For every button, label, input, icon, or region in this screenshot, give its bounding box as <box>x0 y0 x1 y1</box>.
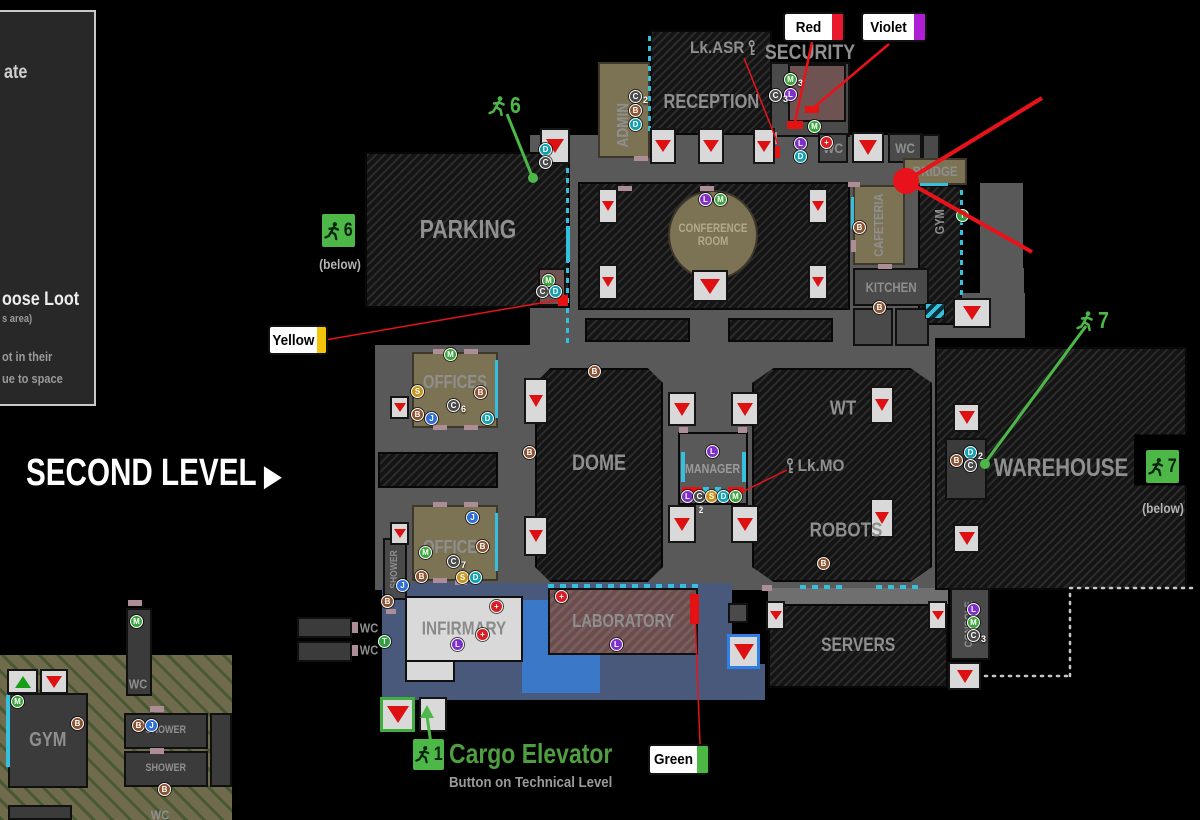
stairs-down-icon <box>875 399 889 411</box>
loot-marker-D: D <box>469 571 482 584</box>
loot-marker-L: L <box>967 603 980 616</box>
loot-marker-M: M <box>967 616 980 629</box>
door-marker <box>128 600 142 606</box>
keycard-label-red: Red <box>783 12 845 42</box>
loot-marker-L: L <box>706 445 719 458</box>
room-kitchen: KITCHEN <box>853 268 929 306</box>
stair-marker <box>668 505 696 543</box>
key-name: Lk.ASR <box>690 38 744 58</box>
keycard-name: Green <box>652 746 694 773</box>
door-marker <box>433 502 447 507</box>
keycard-label-violet: Violet <box>861 12 927 42</box>
room-label: MANAGER <box>685 462 740 476</box>
room-label: PARKING <box>419 216 516 243</box>
floor-area <box>768 588 948 604</box>
room-room <box>8 805 72 820</box>
exit-badge-7: 7 <box>1146 450 1179 483</box>
legend-text-fragment: s area) <box>2 313 32 325</box>
loot-marker-J: J <box>145 719 158 732</box>
keycard-door-marker <box>787 121 803 129</box>
stair-marker <box>731 392 759 426</box>
room-room <box>210 713 232 787</box>
keycard-name: Yellow <box>272 327 314 353</box>
stairs-down-icon <box>602 201 614 211</box>
door-marker <box>352 645 358 656</box>
stairs-down-icon <box>963 306 981 320</box>
door-marker <box>679 427 688 433</box>
room-label: WAREHOUSE <box>994 455 1128 481</box>
room-dome: DOME <box>535 368 663 582</box>
loot-marker-L: L <box>794 137 807 150</box>
stair-marker <box>953 403 980 432</box>
door-marker <box>464 425 478 430</box>
room-bridge: BRIDGE <box>903 158 967 185</box>
level-title-text: SECOND LEVEL <box>26 452 256 494</box>
room-shower-room: SHOWER <box>124 751 208 787</box>
loot-marker-B: B <box>523 446 536 459</box>
loot-marker-med: + <box>476 628 489 641</box>
loot-count: 3 <box>981 634 986 644</box>
loot-marker-B: B <box>853 221 866 234</box>
door-marker <box>634 156 648 161</box>
loot-marker-T: T <box>956 209 969 222</box>
cyan-wall-marker <box>742 452 746 482</box>
stairs-down-icon <box>734 644 754 660</box>
exit-runner-icon <box>1147 457 1167 477</box>
room-label: BRIDGE <box>913 164 958 179</box>
exit-runner-icon <box>1075 310 1097 332</box>
loot-marker-C: C <box>447 399 460 412</box>
stair-marker <box>753 128 775 164</box>
loot-marker-B: B <box>629 104 642 117</box>
door-marker <box>433 425 447 430</box>
loot-marker-L: L <box>451 638 464 651</box>
stair-marker <box>727 634 760 669</box>
door-marker <box>352 622 358 633</box>
stairs-down-icon <box>602 277 614 287</box>
loot-marker-B: B <box>71 717 84 730</box>
map-text: WC <box>129 677 147 692</box>
exit-runner-icon <box>323 221 343 241</box>
room-servers: SERVERS <box>768 604 948 688</box>
door-marker <box>464 502 478 507</box>
room-label: RECEPTION <box>663 92 759 113</box>
loot-marker-med: + <box>490 600 503 613</box>
stair-marker <box>390 396 409 419</box>
room-room <box>895 308 929 346</box>
exit-label-7: 7 <box>1075 307 1110 334</box>
exit-badge-6: 6 <box>322 214 355 247</box>
stairs-down-icon <box>529 395 543 407</box>
exit-badge-1: 1 <box>413 739 444 770</box>
legend-text-fragment: ate <box>4 62 27 84</box>
door-marker <box>700 186 714 191</box>
loot-marker-D: D <box>539 143 552 156</box>
cyan-wall-marker <box>495 513 498 571</box>
room-label: SERVERS <box>821 636 895 656</box>
loot-marker-M: M <box>808 120 821 133</box>
keycard-color-swatch <box>317 327 326 353</box>
stairs-down-icon <box>46 676 62 688</box>
keycard-label-green: Green <box>648 744 710 775</box>
room-label: GYM <box>933 209 947 234</box>
key-label: Lk.ASR <box>690 38 757 58</box>
loot-marker-L: L <box>610 638 623 651</box>
loot-marker-D: D <box>549 285 562 298</box>
stairs-down-icon <box>959 532 975 545</box>
cyan-wall-marker <box>566 226 570 262</box>
loot-marker-B: B <box>411 408 424 421</box>
door-marker <box>464 349 478 354</box>
map-canvas[interactable]: PARKINGRECEPTIONGYMDOMEWAREHOUSESERVERSA… <box>0 0 1200 820</box>
key-icon <box>785 458 795 475</box>
exit-runner-icon <box>414 745 433 764</box>
loot-marker-B: B <box>381 595 394 608</box>
key-icon <box>747 40 757 57</box>
stairs-down-icon <box>812 201 824 211</box>
stair-marker <box>598 264 618 300</box>
room-room <box>853 308 893 346</box>
stair-marker <box>953 524 980 553</box>
map-text: INFIRMARY <box>422 619 506 640</box>
loot-marker-J: J <box>396 579 409 592</box>
stair-marker <box>390 522 409 545</box>
loot-marker-D: D <box>481 412 494 425</box>
stair-marker <box>731 505 759 543</box>
legend-panel: ate oose Loot s area) ot in their ue to … <box>0 10 96 406</box>
floor-area <box>1000 268 1024 323</box>
door-marker <box>386 609 396 614</box>
map-text: (below) <box>1142 500 1184 516</box>
cyan-wall-marker <box>495 360 498 418</box>
labs-map-screen: PARKINGRECEPTIONGYMDOMEWAREHOUSESERVERSA… <box>0 0 1200 820</box>
loot-marker-B: B <box>415 570 428 583</box>
room-elevator-room <box>728 603 748 623</box>
stairs-down-icon <box>387 706 409 723</box>
stair-marker <box>524 516 548 556</box>
keycard-door-marker <box>805 106 819 113</box>
door-marker <box>762 585 772 591</box>
room-label: LABORATORY <box>572 612 674 631</box>
key-label: Lk.MO <box>785 456 844 476</box>
room-wc-block <box>297 617 352 638</box>
room-label: SHOWER <box>146 763 187 775</box>
loot-marker-B: B <box>950 454 963 467</box>
room-laboratory: LABORATORY <box>548 588 698 655</box>
stairs-down-icon <box>932 611 944 620</box>
stairs-down-icon <box>703 140 719 152</box>
loot-marker-B: B <box>873 301 886 314</box>
cyan-wall-marker <box>681 452 685 482</box>
keycard-door-marker <box>558 295 568 306</box>
stair-marker <box>698 128 724 164</box>
map-text: WC <box>895 140 915 156</box>
level-arrow-icon: ▶ <box>264 460 281 491</box>
stair-marker <box>692 270 728 302</box>
stair-marker <box>852 132 884 163</box>
map-text: WT <box>830 398 856 421</box>
stair-marker <box>870 386 894 424</box>
loot-marker-B: B <box>817 557 830 570</box>
loot-marker-C: C <box>629 90 642 103</box>
map-text: (below) <box>319 256 361 272</box>
stair-marker <box>668 392 696 426</box>
loot-count: 3 <box>783 94 788 104</box>
loot-count: 2 <box>643 95 648 105</box>
keycard-color-swatch <box>832 14 843 40</box>
room-infirmary-annex <box>405 660 455 682</box>
loot-count: 3 <box>798 78 803 88</box>
stair-marker <box>419 697 447 732</box>
exit-number: 7 <box>1168 456 1177 478</box>
stair-marker <box>948 662 981 690</box>
loot-marker-J: J <box>425 412 438 425</box>
loot-marker-med: + <box>555 590 568 603</box>
loot-marker-M: M <box>444 348 457 361</box>
loot-marker-M: M <box>419 546 432 559</box>
cyan-wall-marker <box>800 585 846 589</box>
map-text: SECURITY <box>765 41 855 65</box>
loot-marker-M: M <box>714 193 727 206</box>
loot-marker-C: C <box>539 156 552 169</box>
stair-marker <box>766 601 785 630</box>
loot-marker-D: D <box>629 118 642 131</box>
room-conference: CONFERENCE ROOM <box>668 190 758 280</box>
loot-marker-S: S <box>456 571 469 584</box>
loot-marker-C: C <box>447 555 460 568</box>
loot-marker-T: T <box>378 635 391 648</box>
loot-marker-C: C <box>536 285 549 298</box>
cargo-elevator-sub-label: Button on Technical Level <box>449 774 612 791</box>
room-bench <box>585 318 690 342</box>
door-marker <box>878 264 892 269</box>
stairs-up-icon <box>15 676 31 688</box>
stairs-down-icon <box>674 403 690 416</box>
room-wc-block <box>297 641 352 662</box>
stair-marker <box>598 188 618 224</box>
door-marker <box>618 186 632 191</box>
keycard-color-swatch <box>914 14 925 40</box>
stair-marker <box>40 669 68 694</box>
loot-marker-M: M <box>729 490 742 503</box>
keycard-name: Violet <box>866 14 912 40</box>
stairs-down-icon <box>394 529 406 538</box>
map-text: WC <box>151 808 169 820</box>
stairs-down-icon <box>529 530 543 542</box>
room-label: KITCHEN <box>865 280 916 295</box>
stair-marker <box>953 298 991 328</box>
loot-count: 6 <box>461 404 466 414</box>
cyan-wall-marker <box>925 303 945 319</box>
exit-number: 6 <box>510 92 521 119</box>
stairs-down-icon <box>700 279 720 294</box>
exit-number: 1 <box>433 744 442 766</box>
exit-label-6: 6 <box>487 92 522 119</box>
stair-marker <box>380 697 415 732</box>
key-name: Lk.MO <box>798 456 845 476</box>
exit-runner-icon <box>487 95 509 117</box>
legend-text-fragment: oose Loot <box>2 289 79 311</box>
cyan-wall-marker <box>6 695 10 767</box>
room-label: CAFETERIA <box>872 193 886 256</box>
loot-marker-med: + <box>820 136 833 149</box>
loot-count: 7 <box>461 560 466 570</box>
stairs-down-icon <box>812 277 824 287</box>
level-title: SECOND LEVEL ▶ <box>26 452 281 495</box>
stairs-down-icon <box>737 518 753 531</box>
stairs-down-icon <box>959 411 975 424</box>
room-admin: ADMIN <box>598 62 650 158</box>
loot-marker-B: B <box>474 386 487 399</box>
map-text: ROBOTS <box>810 520 883 543</box>
door-marker <box>851 240 856 252</box>
room-label: DOME <box>572 451 626 474</box>
loot-marker-S: S <box>411 385 424 398</box>
keycard-name: Red <box>787 14 829 40</box>
loot-marker-D: D <box>964 446 977 459</box>
stairs-down-icon <box>737 403 753 416</box>
room-offices-block <box>378 452 498 488</box>
loot-marker-C: C <box>964 459 977 472</box>
legend-text-fragment: ot in their <box>2 349 52 364</box>
loot-marker-M: M <box>784 73 797 86</box>
stair-marker <box>808 264 828 300</box>
loot-marker-D: D <box>794 150 807 163</box>
stair-marker <box>524 378 548 424</box>
cargo-elevator-label: Cargo Elevator <box>449 738 612 770</box>
exit-number: 6 <box>344 220 353 242</box>
map-text: 2 <box>699 505 703 515</box>
stairs-down-icon <box>859 140 877 155</box>
stairs-down-icon <box>655 140 671 152</box>
loot-marker-L: L <box>699 193 712 206</box>
stair-marker <box>808 188 828 224</box>
stairs-down-icon <box>674 518 690 531</box>
cyan-wall-marker <box>876 585 922 589</box>
door-marker <box>848 182 860 187</box>
stair-marker <box>928 601 947 630</box>
keycard-door-marker <box>690 594 699 624</box>
door-marker <box>905 182 917 187</box>
loot-marker-J: J <box>466 511 479 524</box>
door-marker <box>150 706 164 712</box>
stairs-down-icon <box>770 611 782 620</box>
loot-count: 2 <box>978 451 983 461</box>
stair-marker <box>650 128 676 164</box>
loot-marker-B: B <box>158 783 171 796</box>
cyan-wall-marker <box>548 584 698 588</box>
door-marker <box>433 578 447 583</box>
stairs-down-icon <box>757 141 771 152</box>
legend-text-fragment: ue to space <box>2 371 63 386</box>
loot-marker-B: B <box>132 719 145 732</box>
exit-number: 7 <box>1098 307 1109 334</box>
room-label: CONFERENCE ROOM <box>679 222 748 247</box>
keycard-color-swatch <box>697 746 708 773</box>
room-bench <box>728 318 833 342</box>
stairs-down-icon <box>957 670 973 683</box>
loot-marker-C: C <box>769 89 782 102</box>
loot-marker-C: C <box>967 629 980 642</box>
map-text: WC <box>360 621 378 636</box>
loot-marker-M: M <box>11 695 24 708</box>
door-marker <box>150 748 164 754</box>
room-label: GYM <box>29 730 66 751</box>
loot-marker-M: M <box>130 615 143 628</box>
door-marker <box>738 427 747 433</box>
map-text: WC <box>360 643 378 658</box>
cyan-wall-marker <box>920 183 948 186</box>
loot-marker-B: B <box>476 540 489 553</box>
stair-marker <box>7 669 38 694</box>
floor-area <box>720 664 765 700</box>
loot-marker-B: B <box>588 365 601 378</box>
cyan-wall-marker <box>648 36 651 132</box>
stairs-down-icon <box>394 403 406 412</box>
keycard-label-yellow: Yellow <box>268 325 328 355</box>
